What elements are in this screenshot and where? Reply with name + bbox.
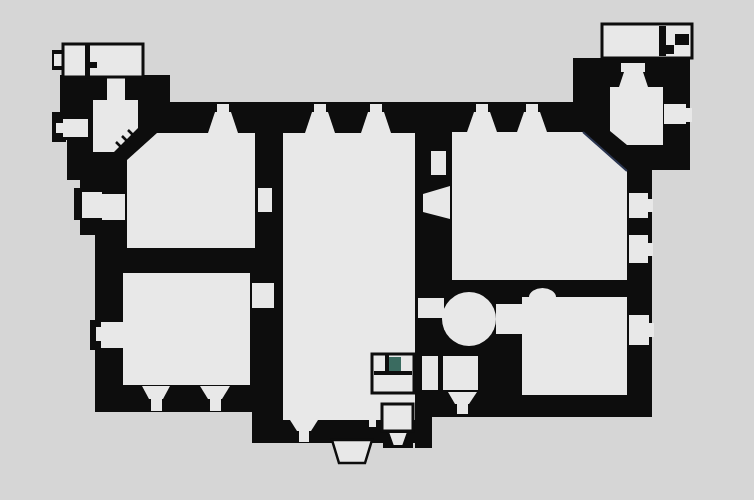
south-window-1-slit	[151, 399, 162, 411]
west-window-2-splay	[102, 194, 125, 220]
outbuilding-tl-slit	[54, 54, 62, 66]
outbuilding-ne-stair-tick-1	[675, 34, 689, 45]
east-window-1-slit	[648, 199, 653, 212]
door-outbuilding-to-tower	[107, 77, 125, 102]
passage-east-of-round	[496, 304, 522, 334]
north-embrasure-3-slit	[370, 104, 382, 112]
east-window-3-slit	[649, 323, 654, 337]
east-window-2	[629, 235, 648, 263]
room-se	[522, 297, 627, 395]
center-column-west	[415, 102, 432, 448]
round-chamber	[442, 292, 496, 346]
outbuilding-top-left	[63, 44, 143, 77]
south-window-2-slit	[210, 399, 221, 411]
west-window-3-slit	[96, 327, 101, 341]
room-a-nw	[127, 133, 255, 248]
east-window-2-slit	[648, 243, 653, 256]
east-window-3	[629, 315, 649, 345]
ne-east-window	[664, 104, 686, 124]
outbuilding-tl-partition	[85, 44, 90, 77]
outbuilding-ne-stair-tick-2	[665, 45, 674, 54]
north-embrasure-2-slit	[314, 104, 326, 112]
entrance-porch-steps	[332, 440, 372, 463]
ne-tower-room	[610, 87, 663, 145]
floor-plan-page	[0, 0, 754, 500]
outbuilding-ne-partition	[659, 26, 666, 56]
east-window-1	[629, 193, 648, 218]
castle-floor-plan	[0, 0, 754, 500]
ne-embrasure-slit	[621, 63, 645, 72]
closet-south-2	[443, 356, 478, 390]
door-room-b-east	[252, 283, 274, 308]
west-window-1-slit	[56, 123, 64, 133]
stair-room-partition-v	[385, 354, 389, 372]
state-room-ne	[452, 132, 627, 280]
west-window-3	[101, 322, 123, 348]
wall-niche-east-of-hall	[431, 151, 446, 175]
passage-west-of-round	[418, 298, 444, 318]
ne-embrasure	[619, 72, 648, 87]
west-window-1	[63, 119, 88, 137]
ne-east-window-slit	[686, 108, 692, 122]
closet-south-1	[422, 356, 438, 390]
hall-south-window-slit	[299, 431, 309, 442]
west-window-2	[82, 192, 102, 218]
entrance-vestibule	[382, 404, 413, 431]
south-window-3-slit	[457, 404, 468, 414]
entrance-sliver	[369, 407, 376, 427]
stair-room-partition-h	[374, 371, 412, 375]
north-embrasure-5-slit	[526, 104, 538, 112]
room-b-sw	[123, 273, 250, 385]
north-embrasure-4-slit	[476, 104, 488, 112]
door-room-a-east	[258, 188, 272, 212]
outbuilding-tl-door-tick	[90, 62, 97, 68]
stair-accent-cell	[388, 357, 401, 371]
north-embrasure-1-slit	[217, 104, 229, 112]
